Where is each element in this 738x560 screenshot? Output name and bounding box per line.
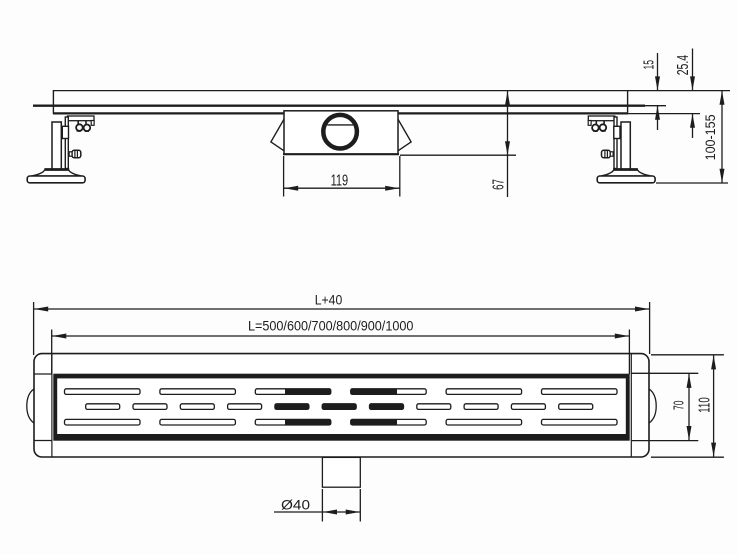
- svg-text:15: 15: [640, 60, 657, 70]
- svg-text:L+40: L+40: [315, 292, 343, 307]
- svg-text:67: 67: [490, 179, 507, 190]
- svg-text:L=500/600/700/800/900/1000: L=500/600/700/800/900/1000: [248, 319, 414, 335]
- svg-text:110: 110: [696, 397, 713, 413]
- svg-text:100-155: 100-155: [702, 114, 718, 160]
- svg-text:119: 119: [331, 173, 349, 190]
- svg-text:25.4: 25.4: [675, 55, 692, 75]
- svg-text:Ø40: Ø40: [281, 496, 310, 512]
- svg-text:70: 70: [672, 401, 688, 410]
